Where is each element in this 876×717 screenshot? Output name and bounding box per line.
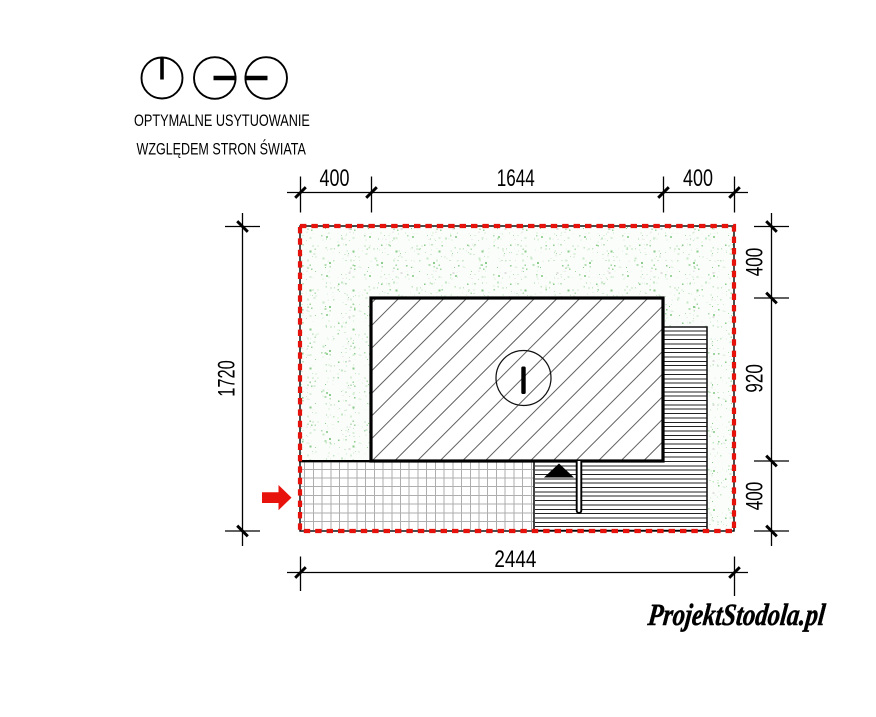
svg-text:OPTYMALNE USYTUOWANIE: OPTYMALNE USYTUOWANIE xyxy=(134,111,310,130)
svg-text:400: 400 xyxy=(742,248,769,276)
svg-text:400: 400 xyxy=(683,166,713,192)
svg-text:WZGLĘDEM STRON ŚWIATA: WZGLĘDEM STRON ŚWIATA xyxy=(137,139,306,159)
svg-text:400: 400 xyxy=(320,166,350,192)
svg-text:1720: 1720 xyxy=(213,360,240,396)
svg-text:1644: 1644 xyxy=(497,165,535,192)
svg-text:2444: 2444 xyxy=(494,545,536,573)
svg-text:400: 400 xyxy=(742,482,769,510)
svg-text:ProjektStodola.pl: ProjektStodola.pl xyxy=(645,599,827,633)
svg-text:920: 920 xyxy=(742,364,769,392)
